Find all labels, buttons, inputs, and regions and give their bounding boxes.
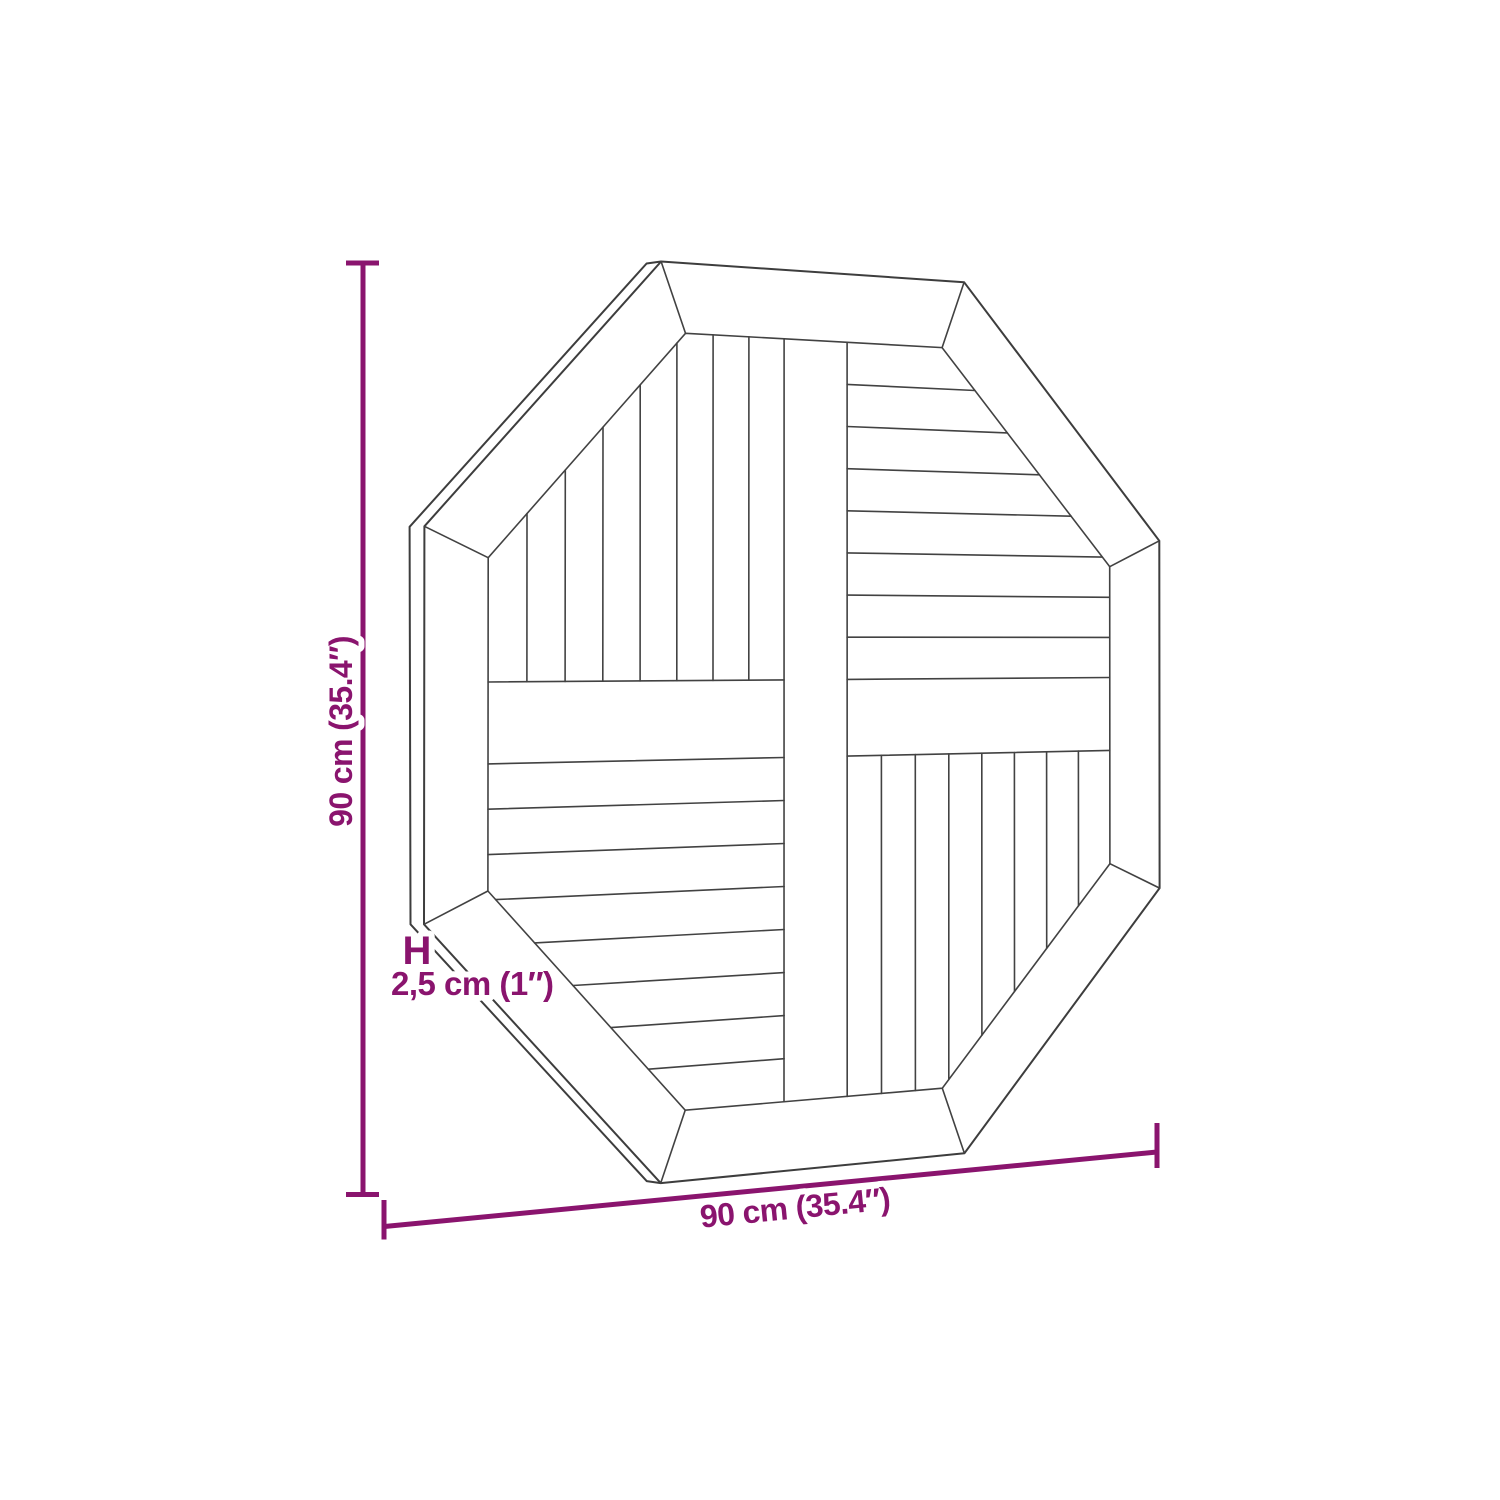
svg-text:2,5 cm (1″): 2,5 cm (1″) bbox=[391, 965, 554, 1002]
svg-text:90 cm (35.4″): 90 cm (35.4″) bbox=[323, 636, 359, 827]
